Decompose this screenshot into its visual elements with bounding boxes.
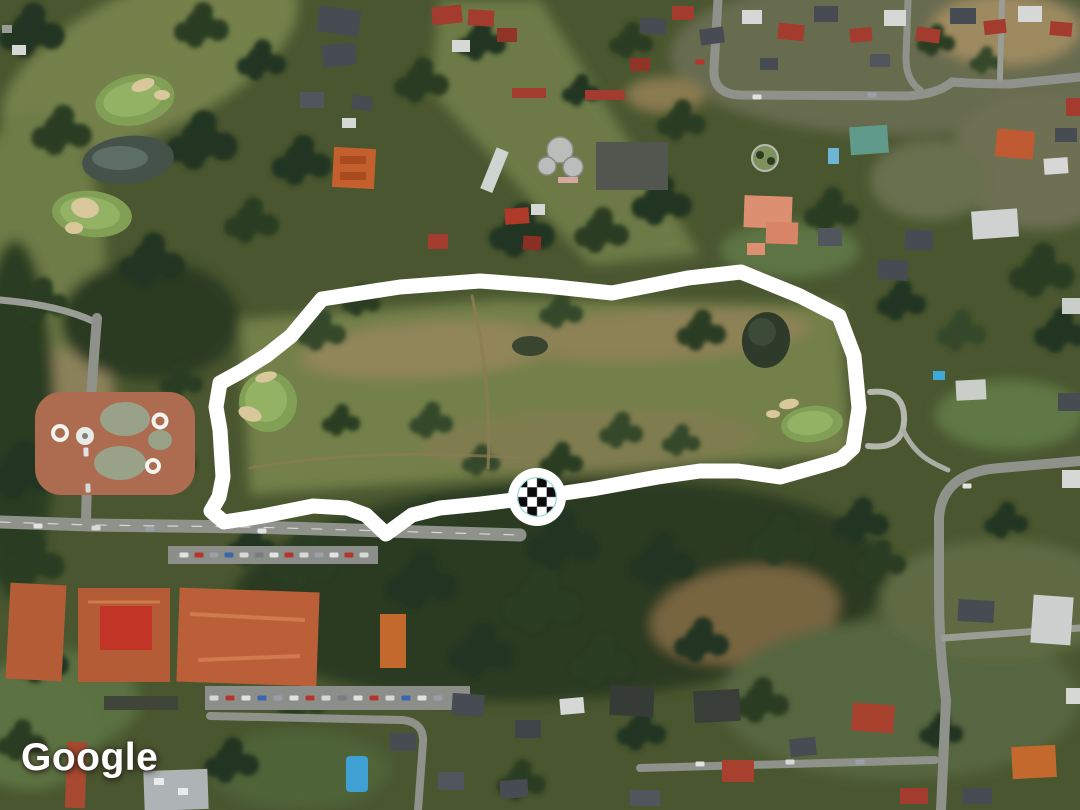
- satellite-imagery: [0, 0, 1080, 810]
- google-logo[interactable]: Google: [21, 736, 158, 780]
- map-canvas[interactable]: Google: [0, 0, 1080, 810]
- plaza: [35, 392, 195, 495]
- finish-marker[interactable]: [508, 468, 566, 526]
